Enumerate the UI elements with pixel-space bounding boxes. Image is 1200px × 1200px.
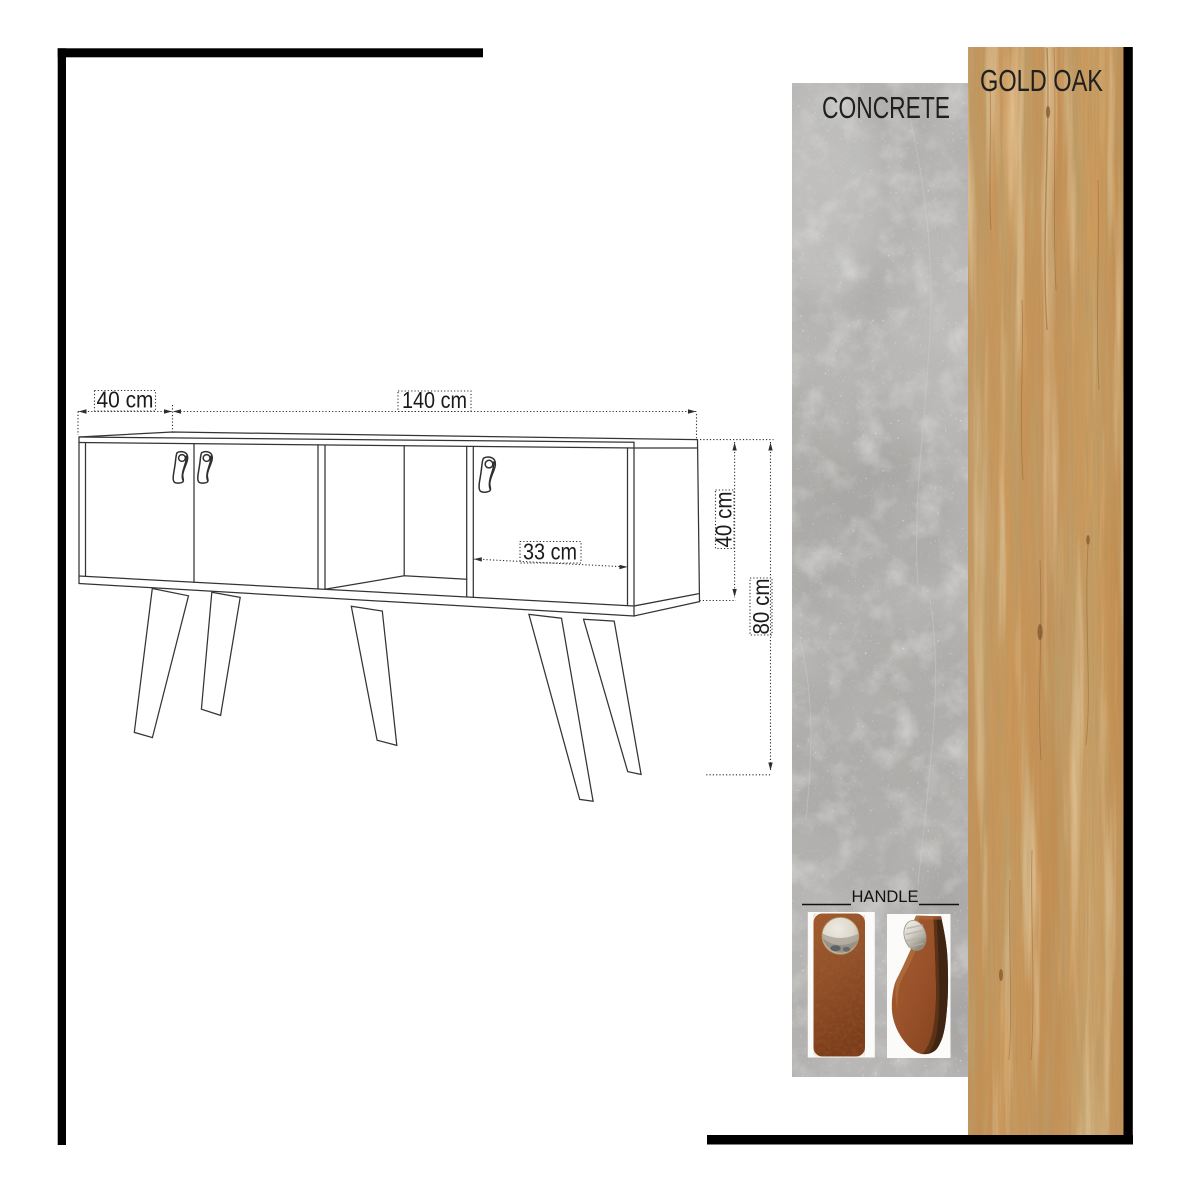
svg-text:40 cm: 40 cm: [711, 492, 737, 548]
svg-text:140 cm: 140 cm: [402, 387, 467, 413]
svg-text:GOLD OAK: GOLD OAK: [980, 63, 1103, 98]
svg-text:HANDLE: HANDLE: [852, 887, 919, 906]
svg-text:33 cm: 33 cm: [523, 539, 577, 565]
svg-text:40 cm: 40 cm: [97, 387, 154, 413]
svg-text:80 cm: 80 cm: [748, 579, 774, 635]
svg-text:CONCRETE: CONCRETE: [822, 90, 950, 125]
